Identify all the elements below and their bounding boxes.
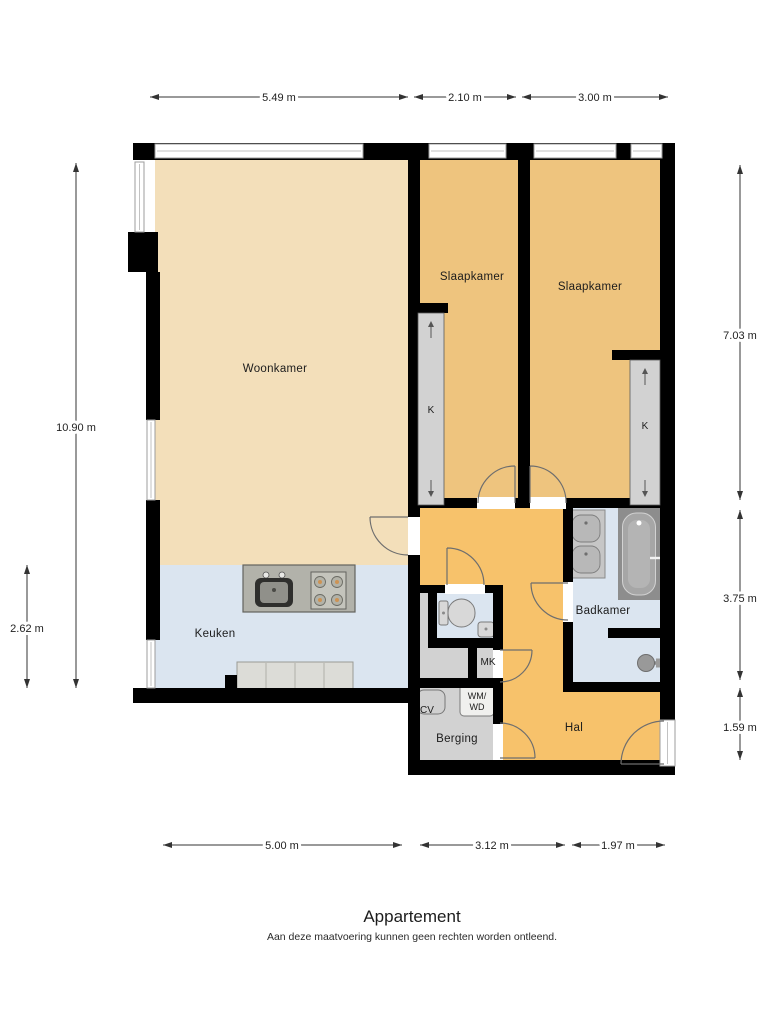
wall-badkamer-bottom	[563, 682, 662, 692]
label-wm: WM/	[468, 691, 487, 701]
label-wd: WD	[470, 702, 485, 712]
washbasin-icon	[568, 510, 605, 578]
dim-right-1: 7.03 m	[723, 330, 757, 342]
label-woonkamer: Woonkamer	[243, 363, 307, 375]
wc-handbasin-drain	[485, 628, 488, 631]
label-hal: Hal	[565, 722, 583, 734]
stove-icon	[311, 572, 346, 609]
label-cv: CV	[420, 705, 434, 716]
wall-berging-top	[408, 678, 503, 688]
label-mk: MK	[481, 657, 496, 668]
title-block: Appartement Aan deze maatvoering kunnen …	[267, 907, 557, 943]
dim-bottom-1: 5.00 m	[265, 840, 299, 852]
label-keuken: Keuken	[195, 628, 236, 640]
dim-top-2: 2.10 m	[448, 92, 482, 104]
plan-disclaimer: Aan deze maatvoering kunnen geen rechten…	[267, 931, 557, 943]
wall-wc-bottom	[428, 638, 503, 648]
toilet-icon	[439, 599, 475, 627]
wall-left-lower	[146, 500, 160, 640]
dim-bottom-2: 3.12 m	[475, 840, 509, 852]
kitchen-lower-counter	[237, 662, 353, 690]
wall-shower-stub	[608, 628, 660, 638]
label-berging: Berging	[436, 733, 478, 745]
wall-between-bedrooms	[518, 160, 530, 505]
floorplan-page: Woonkamer Slaapkamer Slaapkamer Keuken B…	[0, 0, 768, 1024]
wall-bottom-kitchen	[133, 688, 420, 703]
dim-left: 10.90 m 2.62 m	[10, 163, 96, 688]
dim-bottom-3: 1.97 m	[601, 840, 635, 852]
label-badkamer: Badkamer	[576, 605, 631, 617]
wall-living-bedroom	[408, 160, 420, 305]
label-kast-links: K	[428, 405, 435, 416]
dim-left-2: 2.62 m	[10, 623, 44, 635]
wall-wc-right	[493, 593, 503, 640]
wall-left-upper	[146, 272, 160, 420]
wall-bottom-hal	[408, 760, 675, 775]
wall-step-left	[408, 688, 420, 775]
dim-left-1: 10.90 m	[56, 422, 96, 434]
wall-mk-left	[468, 648, 477, 682]
dim-right: 7.03 m 3.75 m 1.59 m	[723, 165, 757, 760]
bathtub-icon	[618, 508, 661, 600]
dim-right-2: 3.75 m	[723, 593, 757, 605]
label-kast-rechts: K	[642, 421, 649, 432]
closet-rechts	[630, 360, 660, 505]
dim-top-1: 5.49 m	[262, 92, 296, 104]
wall-living-hal-lower	[408, 555, 420, 688]
plan-title: Appartement	[363, 907, 461, 926]
wall-closet2-stub	[612, 350, 660, 360]
floorplan-canvas: Woonkamer Slaapkamer Slaapkamer Keuken B…	[0, 0, 768, 1024]
label-slaapkamer-rechts: Slaapkamer	[558, 281, 622, 293]
wall-left-jut	[128, 232, 158, 272]
opening-badkamer	[563, 582, 573, 622]
dim-right-3: 1.59 m	[723, 722, 757, 734]
dim-top: 5.49 m 2.10 m 3.00 m	[150, 92, 668, 104]
opening-slaapkamer-links	[477, 497, 515, 509]
opening-woonkamer	[408, 517, 420, 555]
dim-bottom: 5.00 m 3.12 m 1.97 m	[163, 840, 665, 852]
opening-berging	[493, 724, 503, 760]
wall-living-closet	[408, 305, 418, 505]
label-slaapkamer-links: Slaapkamer	[440, 271, 504, 283]
room-woonkamer	[155, 158, 408, 565]
wall-wc-left	[428, 593, 437, 640]
wall-living-hal-upper	[408, 505, 420, 517]
wall-closet1-stub	[412, 303, 448, 313]
dim-top-3: 3.00 m	[578, 92, 612, 104]
opening-wc	[445, 584, 485, 594]
wall-counter-stub	[225, 675, 237, 692]
opening-slaapkamer-rechts	[530, 497, 566, 509]
kitchen-island	[243, 565, 355, 612]
wall-right	[660, 143, 675, 775]
